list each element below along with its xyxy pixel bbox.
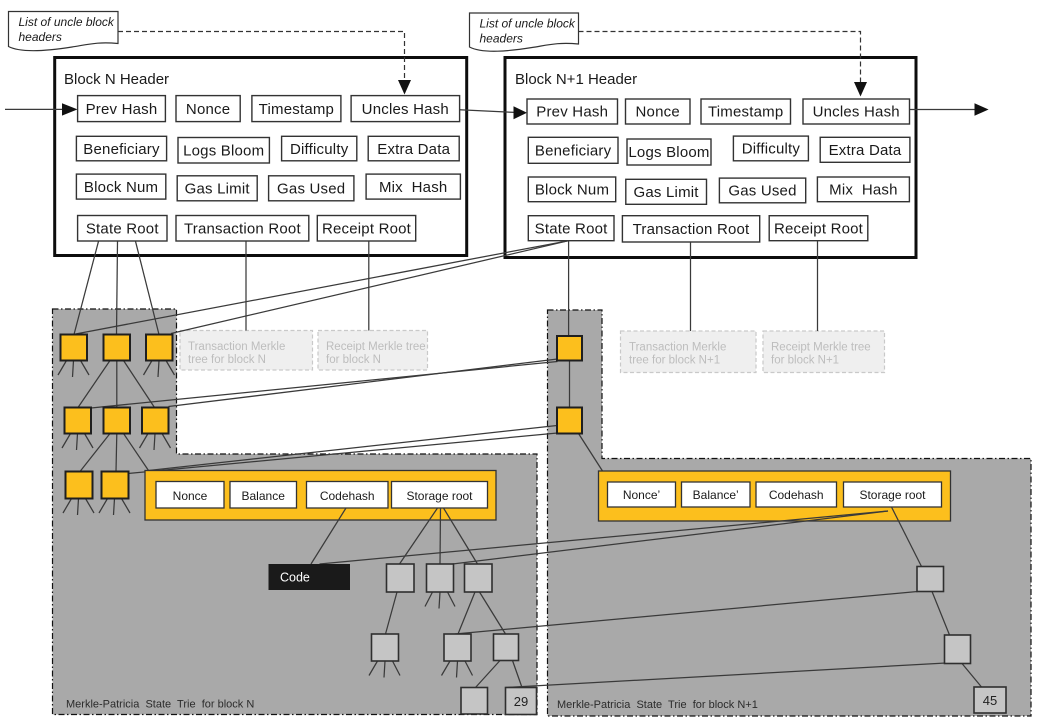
svg-text:Codehash: Codehash xyxy=(769,488,824,502)
svg-text:Difficulty: Difficulty xyxy=(290,141,349,158)
svg-text:Transaction Root: Transaction Root xyxy=(633,221,750,238)
svg-text:Block N Header: Block N Header xyxy=(64,71,169,88)
svg-text:Transaction Root: Transaction Root xyxy=(184,221,301,238)
svg-text:29: 29 xyxy=(514,694,528,709)
svg-text:Gas Used: Gas Used xyxy=(728,183,796,200)
svg-text:Beneficiary: Beneficiary xyxy=(535,143,612,160)
svg-text:Uncles Hash: Uncles Hash xyxy=(362,101,449,118)
svg-text:Timestamp: Timestamp xyxy=(259,101,334,118)
svg-text:Block Num: Block Num xyxy=(535,182,609,199)
svg-text:Code: Code xyxy=(280,571,310,585)
svg-text:Mix Hash: Mix Hash xyxy=(379,179,447,196)
svg-text:Receipt Root: Receipt Root xyxy=(774,220,864,237)
svg-text:Logs Bloom: Logs Bloom xyxy=(183,143,264,160)
svg-text:Logs Bloom: Logs Bloom xyxy=(628,144,709,161)
svg-text:Uncles Hash: Uncles Hash xyxy=(813,104,900,121)
svg-text:List of uncle block: List of uncle block xyxy=(480,17,576,31)
svg-text:Extra Data: Extra Data xyxy=(829,142,902,159)
svg-text:Mix Hash: Mix Hash xyxy=(829,182,897,199)
svg-text:Merkle-Patricia State Trie: Merkle-Patricia State Trie for block N+1 xyxy=(557,699,758,711)
svg-text:Balance: Balance xyxy=(242,489,286,503)
svg-text:Beneficiary: Beneficiary xyxy=(83,141,160,158)
svg-text:Prev Hash: Prev Hash xyxy=(86,101,158,118)
svg-text:Transaction Merkle: Transaction Merkle xyxy=(629,342,726,354)
svg-text:Difficulty: Difficulty xyxy=(742,141,801,158)
svg-text:Receipt Merkle tree: Receipt Merkle tree xyxy=(771,342,871,354)
svg-text:State Root: State Root xyxy=(86,221,160,238)
svg-text:for block N+1: for block N+1 xyxy=(771,355,839,367)
svg-text:Merkle-Patricia State Trie: Merkle-Patricia State Trie for block N xyxy=(66,699,254,711)
svg-text:List of uncle block: List of uncle block xyxy=(19,15,115,29)
svg-text:headers: headers xyxy=(19,30,62,44)
svg-text:tree for block N+1: tree for block N+1 xyxy=(629,355,720,367)
svg-text:Nonce: Nonce xyxy=(186,101,230,118)
svg-text:Receipt Merkle tree: Receipt Merkle tree xyxy=(326,341,426,353)
svg-text:headers: headers xyxy=(480,32,523,46)
svg-text:Storage root: Storage root xyxy=(406,489,473,503)
svg-text:Balance’: Balance’ xyxy=(693,488,739,502)
svg-text:Gas Limit: Gas Limit xyxy=(634,184,700,201)
svg-text:Block N+1 Header: Block N+1 Header xyxy=(515,71,637,88)
svg-text:Nonce’: Nonce’ xyxy=(623,488,660,502)
svg-text:for block N: for block N xyxy=(326,354,381,366)
svg-text:State Root: State Root xyxy=(535,220,609,237)
svg-text:tree for block N: tree for block N xyxy=(188,354,266,366)
svg-text:Gas Used: Gas Used xyxy=(277,181,345,198)
svg-text:Nonce: Nonce xyxy=(173,489,208,503)
svg-text:45: 45 xyxy=(983,693,997,708)
svg-text:Prev Hash: Prev Hash xyxy=(536,104,608,121)
svg-text:Gas Limit: Gas Limit xyxy=(185,181,251,198)
svg-text:Codehash: Codehash xyxy=(320,489,375,503)
svg-text:Extra Data: Extra Data xyxy=(377,141,450,158)
svg-text:Block Num: Block Num xyxy=(84,179,158,196)
svg-text:Timestamp: Timestamp xyxy=(708,104,783,121)
svg-text:Storage root: Storage root xyxy=(859,488,926,502)
svg-text:Nonce: Nonce xyxy=(636,104,680,121)
svg-text:Transaction Merkle: Transaction Merkle xyxy=(188,341,285,353)
svg-text:Receipt Root: Receipt Root xyxy=(322,221,412,238)
